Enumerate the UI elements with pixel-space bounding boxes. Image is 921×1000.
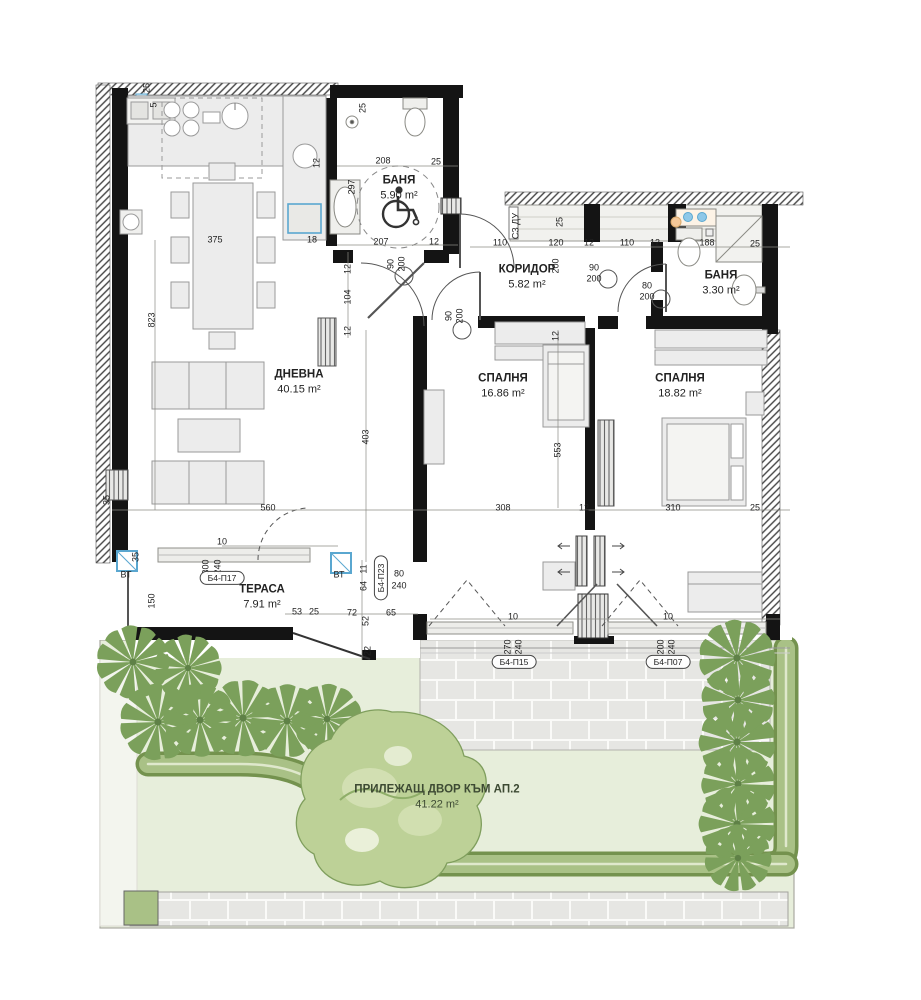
- floor-plan: ДНЕВНА 40.15 m² БАНЯ 5.90 m² КОРИДОР 5.8…: [0, 0, 921, 1000]
- desk-2: [688, 572, 762, 612]
- entrance-threshold: [441, 198, 461, 214]
- element-tag: Б4-П07: [646, 655, 691, 669]
- floor-plan-drawing: [0, 0, 921, 1000]
- kitchen-sink: [293, 144, 317, 168]
- duct-shaft: [509, 207, 518, 239]
- nightstand: [746, 392, 764, 415]
- coffee-table: [178, 419, 240, 452]
- wardrobe-2: [655, 330, 767, 348]
- dining-table: [193, 183, 253, 329]
- vanity-counter: [676, 209, 716, 226]
- wardrobe-1: [495, 322, 585, 344]
- element-tag: Б4-П15: [492, 655, 537, 669]
- toilet-2: [678, 238, 700, 266]
- washbasin-2: [732, 275, 756, 305]
- window-pier: [578, 594, 608, 638]
- radiator: [598, 420, 614, 506]
- toilet-1-tank: [403, 98, 427, 109]
- toilet-1: [405, 108, 425, 136]
- side-table: [543, 562, 575, 590]
- dishwasher: [288, 204, 321, 233]
- window-sill-left: [106, 470, 128, 500]
- washbasin-1: [334, 187, 356, 227]
- sofa-2: [152, 461, 264, 504]
- desk-1: [424, 390, 444, 464]
- tv-unit: [318, 318, 336, 366]
- element-tag: Б4-П17: [200, 571, 245, 585]
- element-tag: Б4-П23: [374, 556, 388, 601]
- planter-square: [124, 891, 158, 925]
- walkway: [130, 892, 788, 926]
- sofa-1: [152, 362, 264, 409]
